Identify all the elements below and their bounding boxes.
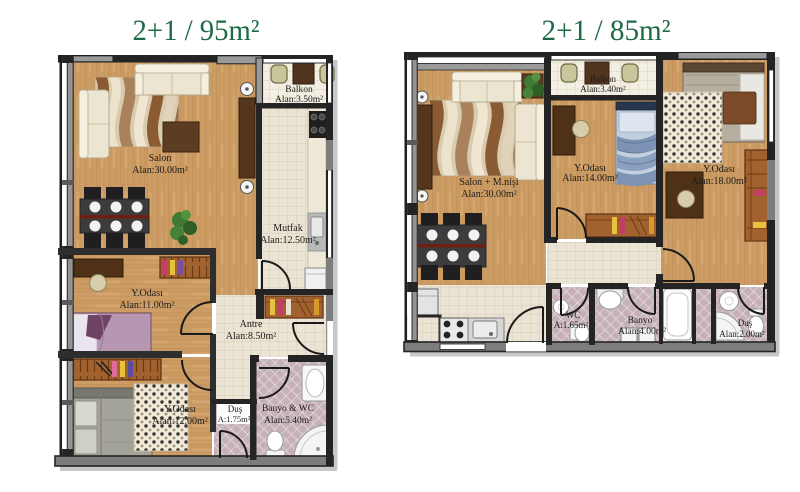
svg-text:Alan:2.00m²: Alan:2.00m² xyxy=(719,329,765,339)
svg-text:Y.Odası: Y.Odası xyxy=(131,288,163,299)
svg-text:Alan:3.40m²: Alan:3.40m² xyxy=(580,84,626,94)
svg-text:Alan:11.00m²: Alan:11.00m² xyxy=(119,300,174,311)
svg-text:Banyo: Banyo xyxy=(628,316,653,326)
svg-text:Alan:5.40m²: Alan:5.40m² xyxy=(264,416,312,426)
svg-text:Y.Odası: Y.Odası xyxy=(703,164,735,175)
svg-text:Alan:12.50m²: Alan:12.50m² xyxy=(260,235,316,246)
svg-text:Antre: Antre xyxy=(240,319,263,330)
svg-text:Salon: Salon xyxy=(149,153,172,164)
svg-text:Alan:30.00m²: Alan:30.00m² xyxy=(461,189,517,200)
svg-text:2+1 / 95m²: 2+1 / 95m² xyxy=(133,14,260,47)
svg-text:Mutfak: Mutfak xyxy=(273,223,302,234)
svg-text:Alan:8.50m²: Alan:8.50m² xyxy=(226,331,277,342)
svg-text:Banyo & WC: Banyo & WC xyxy=(262,404,314,414)
svg-text:Alan:12.00m²: Alan:12.00m² xyxy=(152,416,208,427)
svg-text:Balkon: Balkon xyxy=(285,85,313,95)
svg-text:Y.Odası: Y.Odası xyxy=(164,404,196,415)
svg-text:A:1.65m²: A:1.65m² xyxy=(554,320,589,330)
svg-text:Duş: Duş xyxy=(228,404,243,414)
svg-text:Alan:18.00m²: Alan:18.00m² xyxy=(691,176,747,187)
svg-text:2+1 / 85m²: 2+1 / 85m² xyxy=(542,14,671,47)
svg-text:A:1.75m²: A:1.75m² xyxy=(218,414,251,424)
svg-text:Balkon: Balkon xyxy=(590,74,616,84)
svg-text:Alan:14.00m²: Alan:14.00m² xyxy=(562,173,618,184)
svg-text:Salon + M.nişi: Salon + M.nişi xyxy=(459,177,518,188)
svg-text:Alan:4.00m²: Alan:4.00m² xyxy=(618,327,666,337)
svg-text:Alan:30.00m²: Alan:30.00m² xyxy=(132,165,188,176)
svg-text:Duş: Duş xyxy=(738,318,753,328)
